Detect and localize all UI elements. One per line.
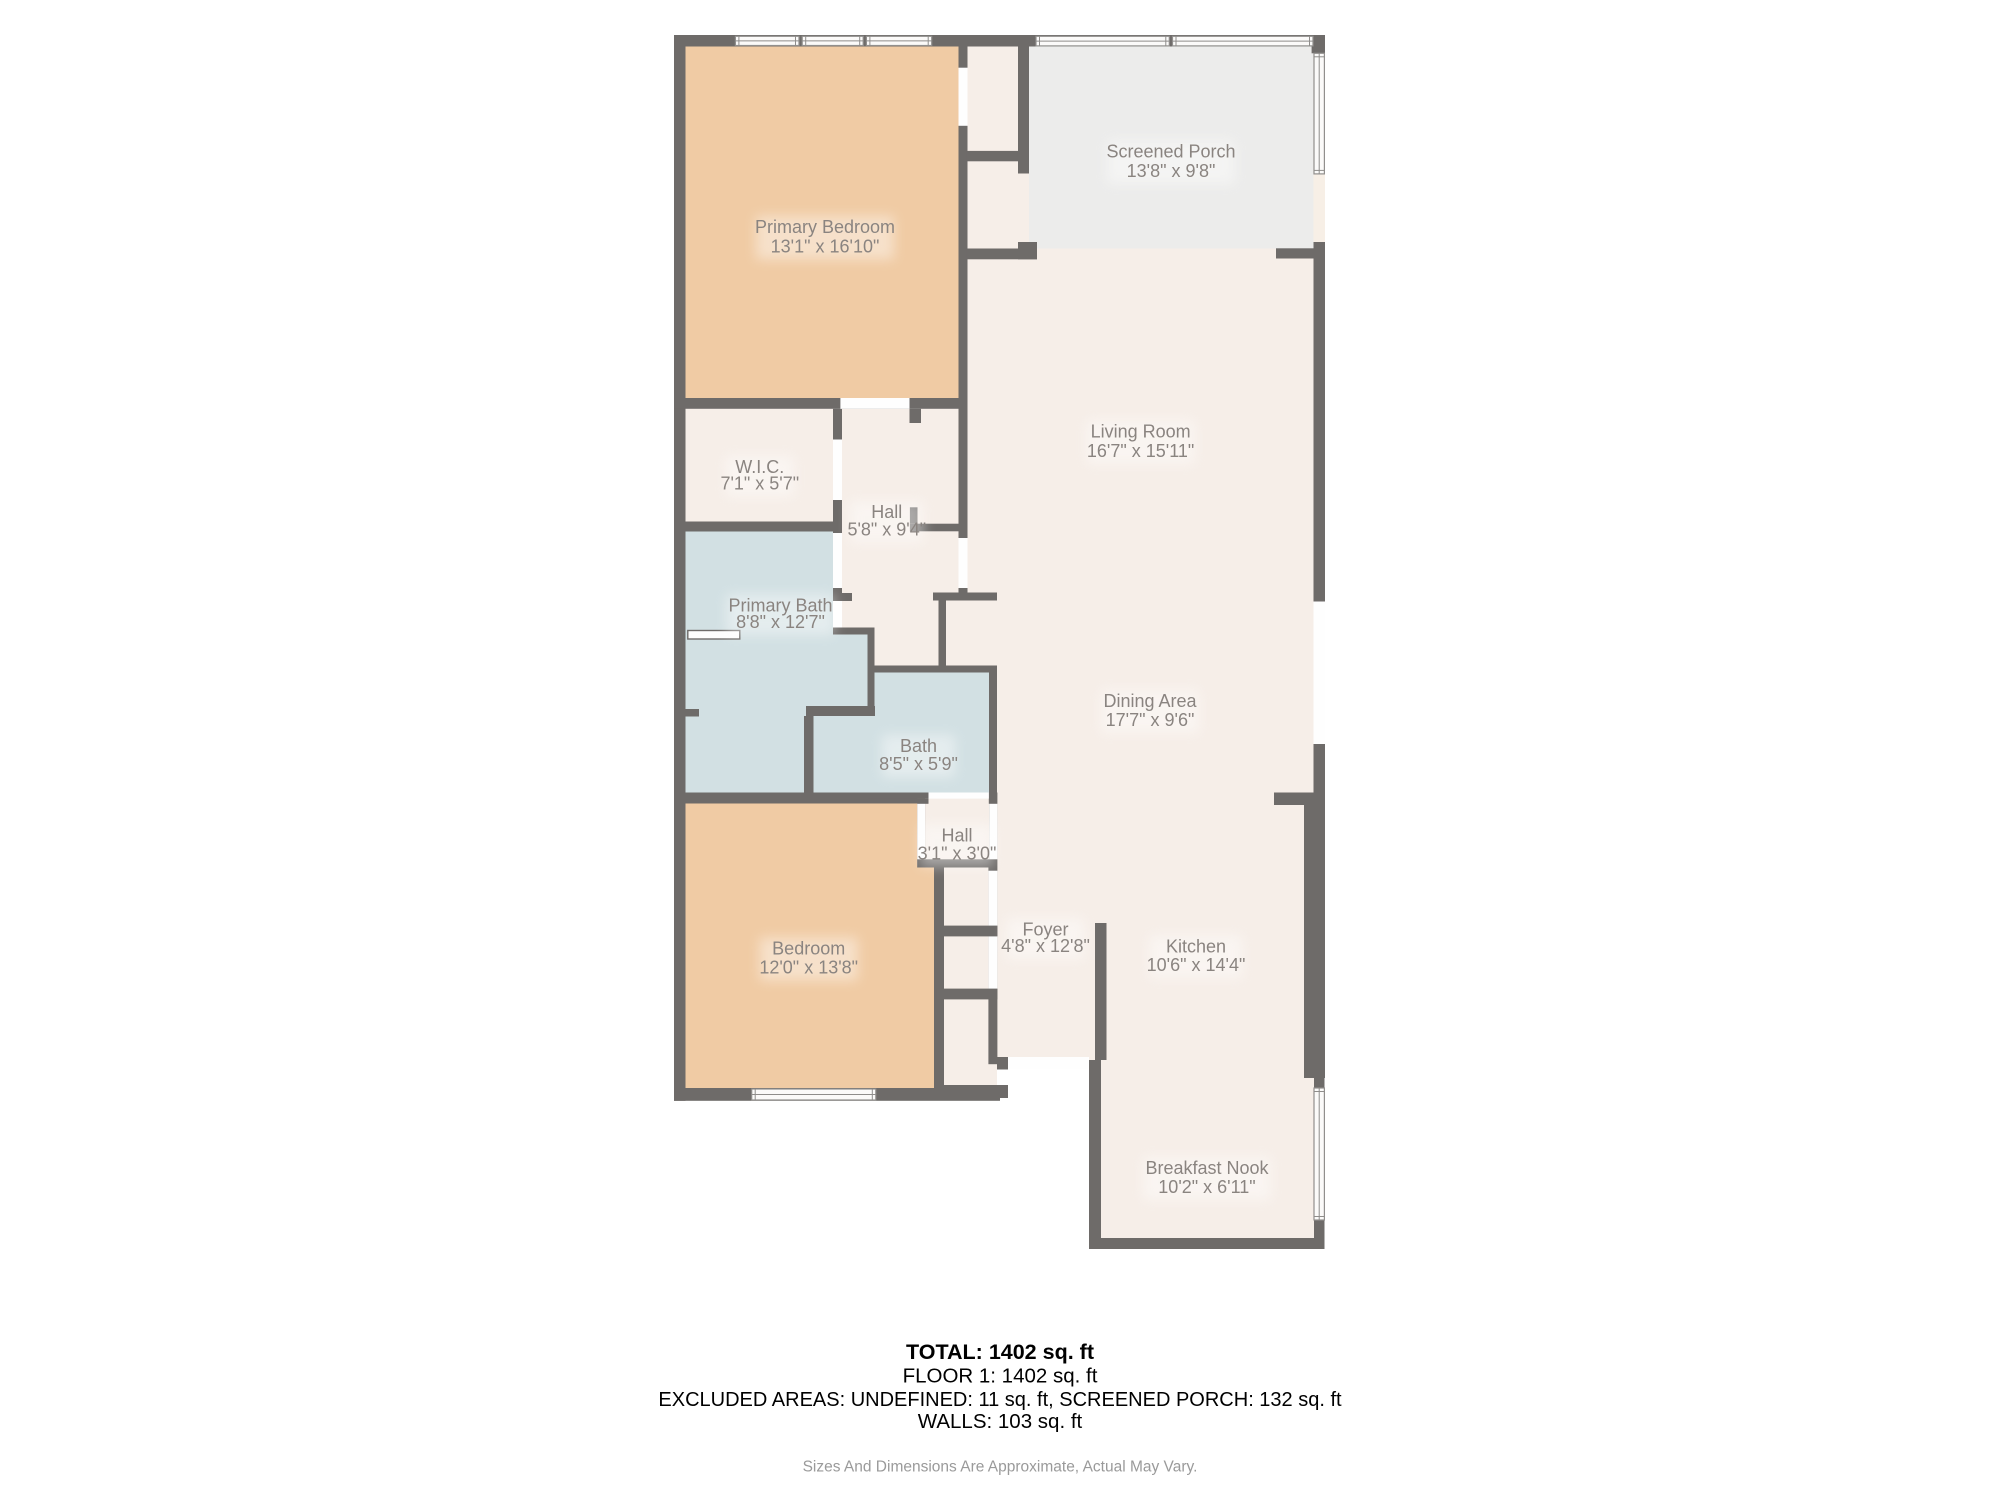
svg-text:13'1" x 16'10": 13'1" x 16'10" [771,237,880,257]
svg-text:Bedroom: Bedroom [772,939,845,959]
svg-text:13'8" x 9'8": 13'8" x 9'8" [1127,161,1216,181]
svg-text:WALLS: 103 sq. ft: WALLS: 103 sq. ft [918,1410,1083,1433]
svg-text:TOTAL: 1402 sq. ft: TOTAL: 1402 sq. ft [906,1340,1094,1364]
svg-text:8'5" x 5'9": 8'5" x 5'9" [879,754,958,774]
svg-text:3'1" x 3'0": 3'1" x 3'0" [918,844,997,864]
svg-text:Kitchen: Kitchen [1166,937,1226,957]
svg-text:FLOOR 1: 1402 sq. ft: FLOOR 1: 1402 sq. ft [903,1364,1098,1387]
svg-text:Primary Bedroom: Primary Bedroom [755,217,895,237]
svg-text:4'8" x 12'8": 4'8" x 12'8" [1001,936,1090,956]
svg-text:17'7" x 9'6": 17'7" x 9'6" [1106,710,1195,730]
svg-text:EXCLUDED AREAS: UNDEFINED: 11: EXCLUDED AREAS: UNDEFINED: 11 sq. ft, SC… [658,1389,1342,1411]
svg-text:Sizes And Dimensions Are Appro: Sizes And Dimensions Are Approximate, Ac… [803,1459,1198,1476]
svg-text:10'2" x 6'11": 10'2" x 6'11" [1158,1177,1255,1197]
svg-text:12'0" x 13'8": 12'0" x 13'8" [759,958,858,978]
svg-text:Living Room: Living Room [1091,422,1191,442]
svg-text:16'7" x 15'11": 16'7" x 15'11" [1087,441,1194,461]
svg-text:Dining Area: Dining Area [1103,691,1197,711]
svg-text:5'8" x 9'4": 5'8" x 9'4" [847,520,926,540]
svg-text:10'6" x 14'4": 10'6" x 14'4" [1147,955,1246,975]
svg-text:Screened Porch: Screened Porch [1106,142,1235,162]
svg-text:8'8" x 12'7": 8'8" x 12'7" [736,612,825,632]
svg-text:Hall: Hall [941,826,972,846]
svg-text:Breakfast Nook: Breakfast Nook [1145,1158,1269,1178]
svg-text:Bath: Bath [900,736,937,756]
svg-text:7'1" x 5'7": 7'1" x 5'7" [720,474,799,494]
